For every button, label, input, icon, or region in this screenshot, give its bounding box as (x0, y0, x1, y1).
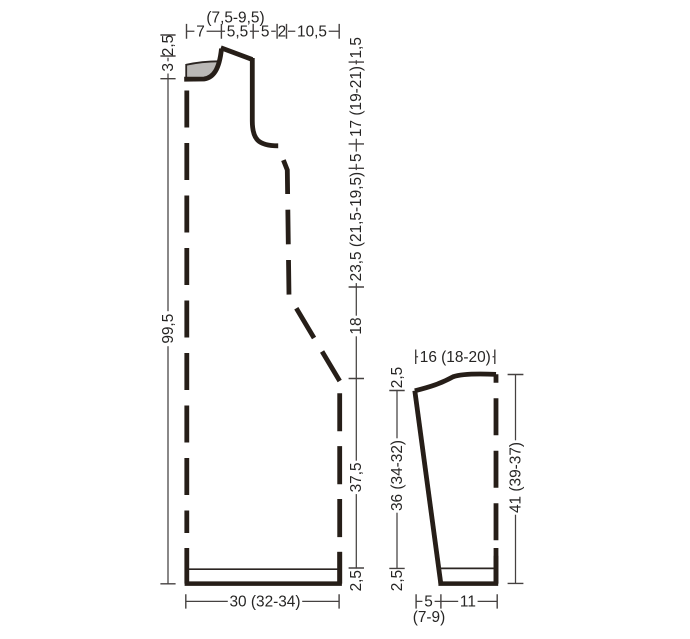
svg-text:36 (34-32): 36 (34-32) (389, 440, 406, 511)
svg-text:2,5: 2,5 (389, 570, 406, 591)
svg-text:1,5: 1,5 (348, 37, 365, 58)
svg-text:99,5: 99,5 (160, 314, 177, 344)
svg-text:2: 2 (278, 24, 287, 41)
svg-text:18: 18 (348, 317, 365, 334)
svg-text:23,5 (21,5-19,5): 23,5 (21,5-19,5) (348, 172, 365, 282)
svg-text:7: 7 (196, 24, 205, 41)
svg-text:37,5: 37,5 (348, 462, 365, 492)
svg-text:17 (19-21): 17 (19-21) (348, 66, 365, 137)
svg-text:(7-9): (7-9) (413, 609, 446, 626)
svg-text:16 (18-20): 16 (18-20) (420, 349, 491, 366)
svg-text:30 (32-34): 30 (32-34) (229, 594, 300, 611)
svg-text:2,5: 2,5 (389, 367, 406, 388)
svg-text:(7,5-9,5): (7,5-9,5) (206, 10, 264, 27)
svg-text:2,5: 2,5 (348, 570, 365, 591)
svg-text:11: 11 (460, 594, 476, 611)
svg-text:2,5: 2,5 (160, 35, 177, 56)
svg-text:10,5: 10,5 (297, 24, 327, 41)
svg-text:3: 3 (160, 63, 177, 72)
svg-text:41 (39-37): 41 (39-37) (507, 442, 524, 513)
svg-text:5: 5 (348, 153, 365, 162)
